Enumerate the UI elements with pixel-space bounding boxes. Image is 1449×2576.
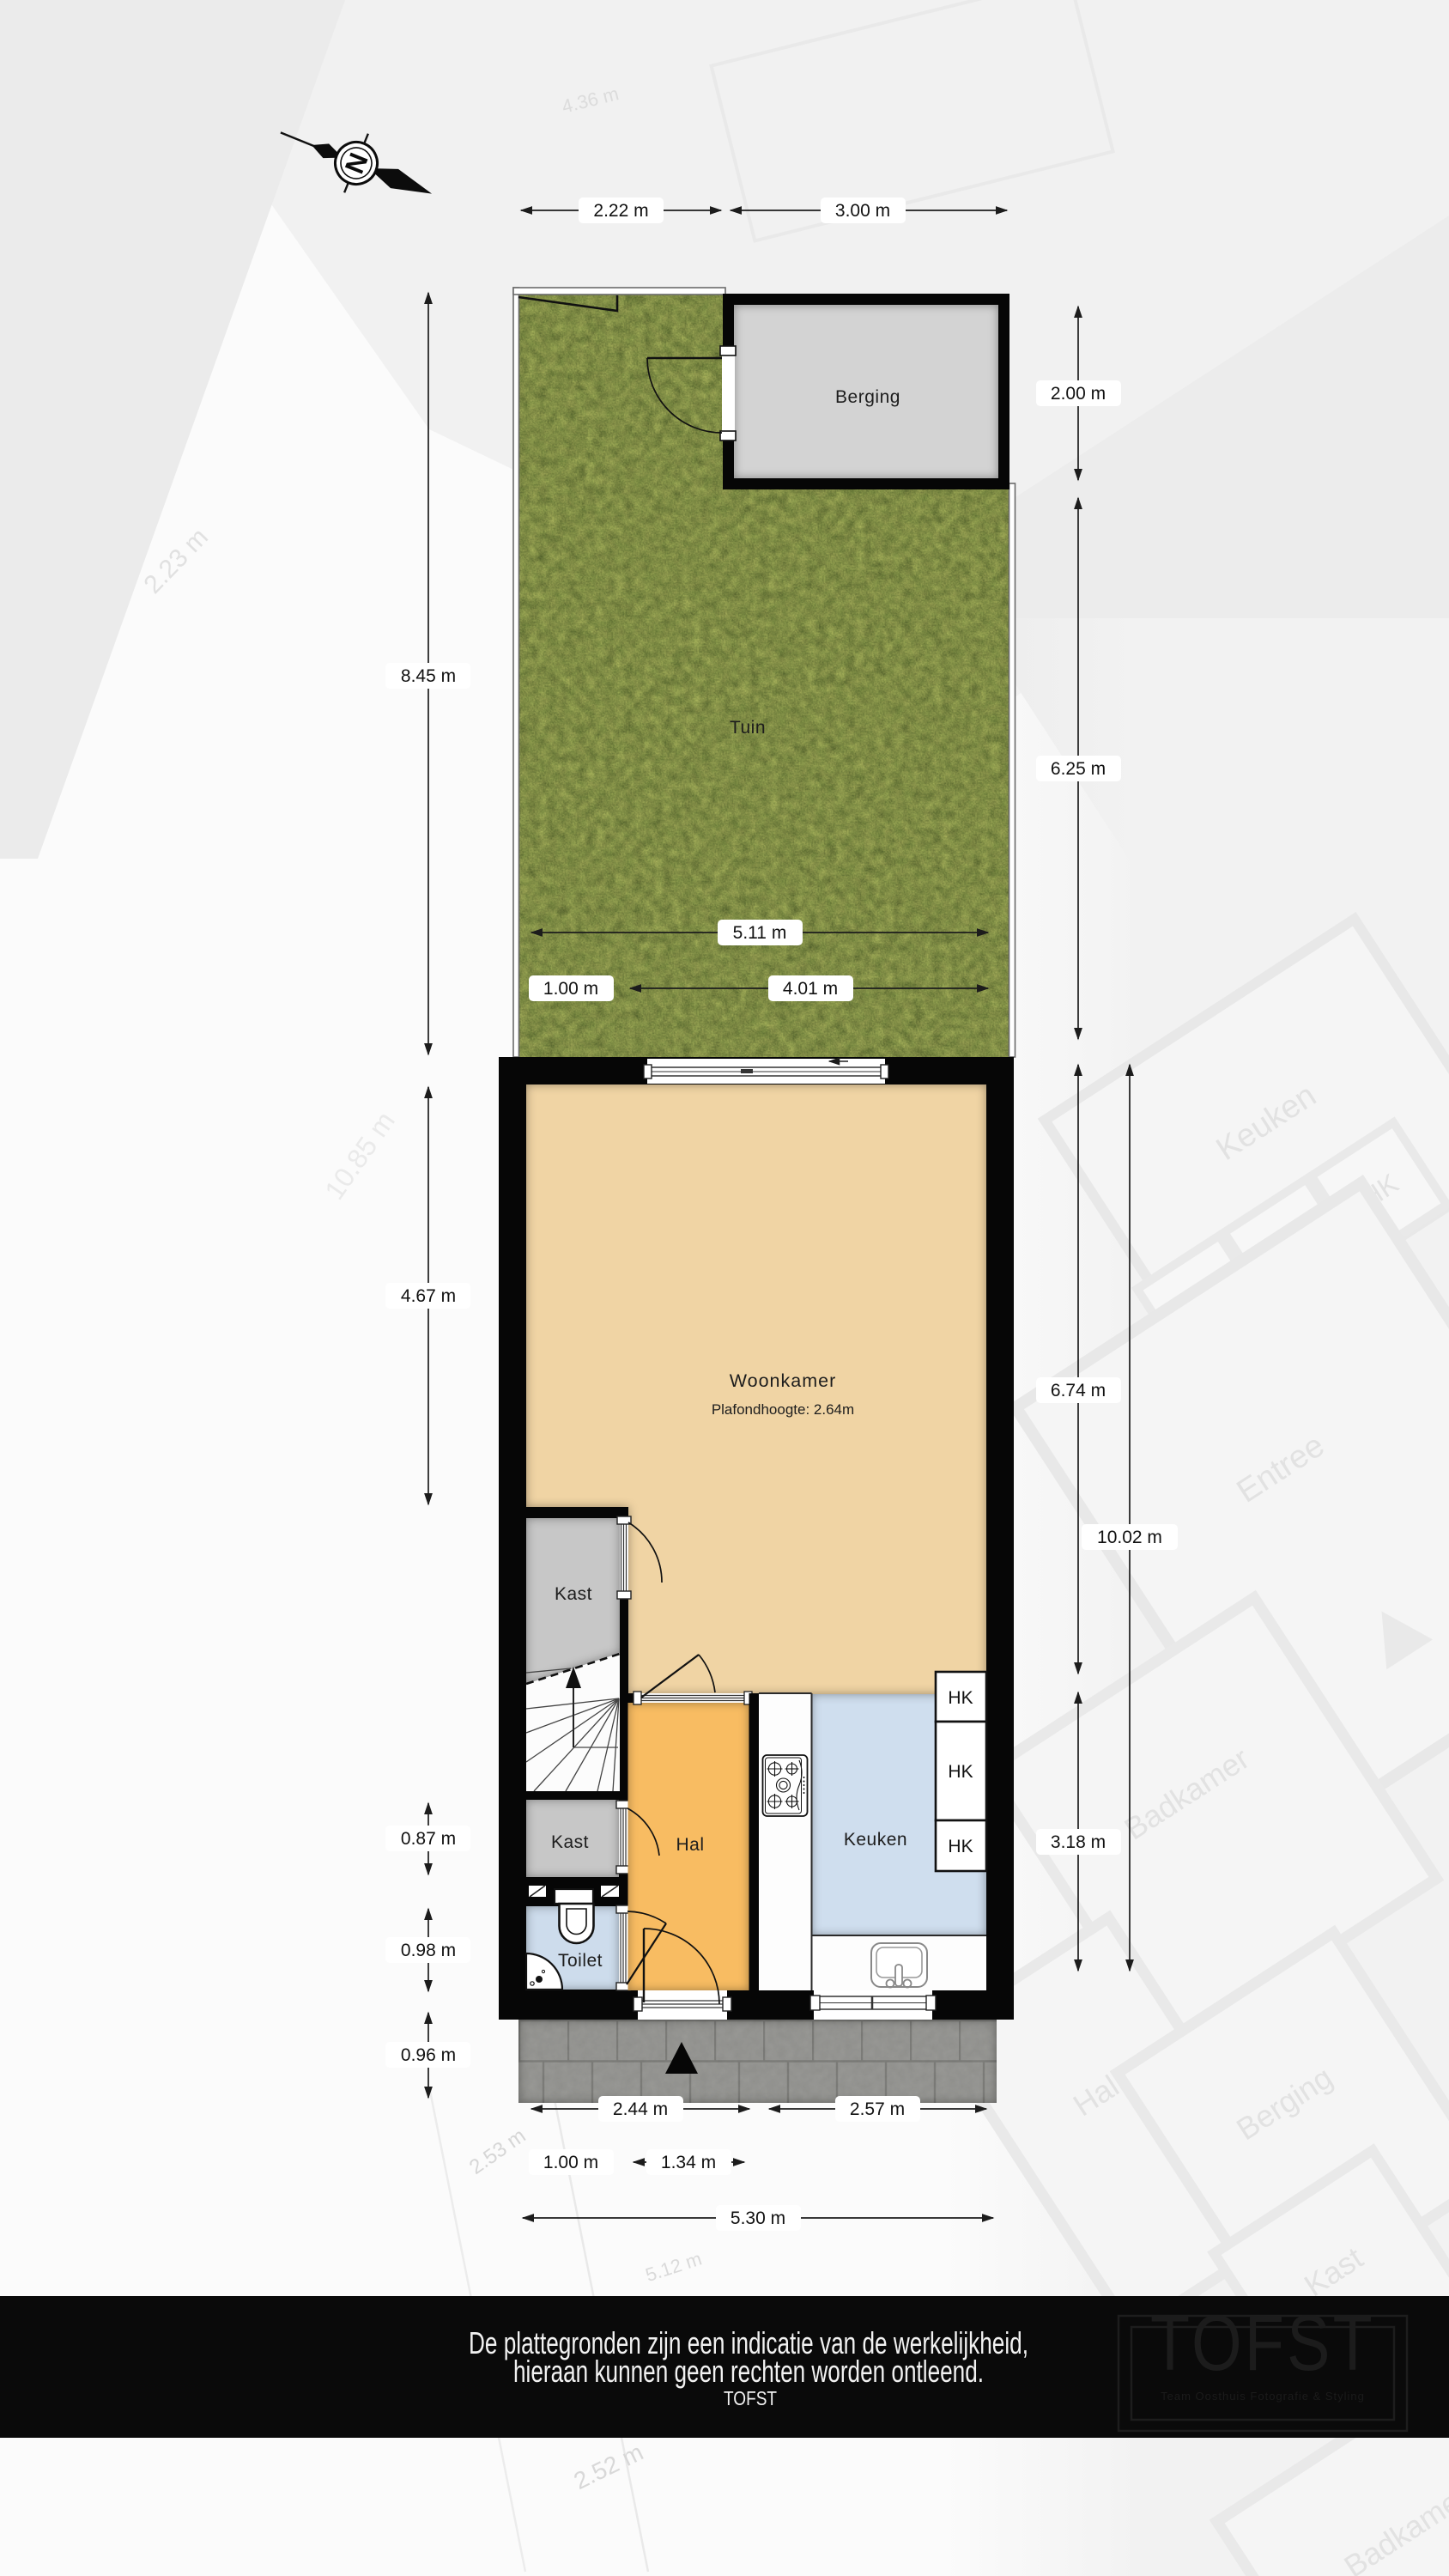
svg-text:Hal: Hal [676, 1835, 704, 1855]
svg-text:Berging: Berging [835, 387, 900, 407]
svg-text:HK: HK [948, 1688, 973, 1708]
svg-text:Kast: Kast [555, 1584, 592, 1604]
svg-text:6.74 m: 6.74 m [1051, 1381, 1106, 1400]
svg-text:2.57 m: 2.57 m [850, 2099, 905, 2119]
svg-text:2.00 m: 2.00 m [1051, 384, 1106, 404]
svg-text:0.96 m: 0.96 m [401, 2045, 456, 2065]
svg-text:Keuken: Keuken [844, 1830, 907, 1850]
svg-text:8.45 m: 8.45 m [401, 666, 456, 686]
svg-text:5.11 m: 5.11 m [733, 923, 787, 943]
svg-text:2.22 m: 2.22 m [593, 201, 648, 221]
svg-text:2.44 m: 2.44 m [613, 2099, 668, 2119]
svg-text:4.01 m: 4.01 m [783, 979, 838, 999]
svg-text:1.00 m: 1.00 m [543, 979, 598, 999]
svg-text:6.25 m: 6.25 m [1051, 759, 1106, 779]
svg-text:HK: HK [948, 1762, 973, 1782]
svg-text:Woonkamer: Woonkamer [730, 1370, 837, 1391]
svg-text:4.67 m: 4.67 m [401, 1286, 456, 1306]
svg-text:TOFST: TOFST [724, 2387, 777, 2409]
svg-text:Kast: Kast [551, 1832, 589, 1852]
svg-text:0.98 m: 0.98 m [401, 1941, 456, 1960]
svg-text:TOFST: TOFST [1150, 2300, 1375, 2387]
svg-text:0.87 m: 0.87 m [401, 1829, 456, 1849]
svg-text:Tuin: Tuin [730, 718, 766, 738]
svg-text:HK: HK [948, 1837, 973, 1856]
svg-text:3.00 m: 3.00 m [835, 201, 890, 221]
svg-text:3.18 m: 3.18 m [1051, 1832, 1106, 1852]
svg-text:5.30 m: 5.30 m [731, 2208, 785, 2228]
svg-text:1.00 m: 1.00 m [543, 2153, 598, 2172]
svg-text:1.34 m: 1.34 m [661, 2153, 716, 2172]
svg-text:Plafondhoogte: 2.64m: Plafondhoogte: 2.64m [712, 1401, 854, 1418]
svg-text:Toilet: Toilet [558, 1951, 603, 1971]
svg-text:Team Oosthuis Fotografie & Sty: Team Oosthuis Fotografie & Styling [1161, 2390, 1365, 2403]
svg-text:10.02 m: 10.02 m [1097, 1528, 1162, 1547]
svg-text:hieraan kunnen geen rechten wo: hieraan kunnen geen rechten worden ontle… [513, 2354, 984, 2389]
